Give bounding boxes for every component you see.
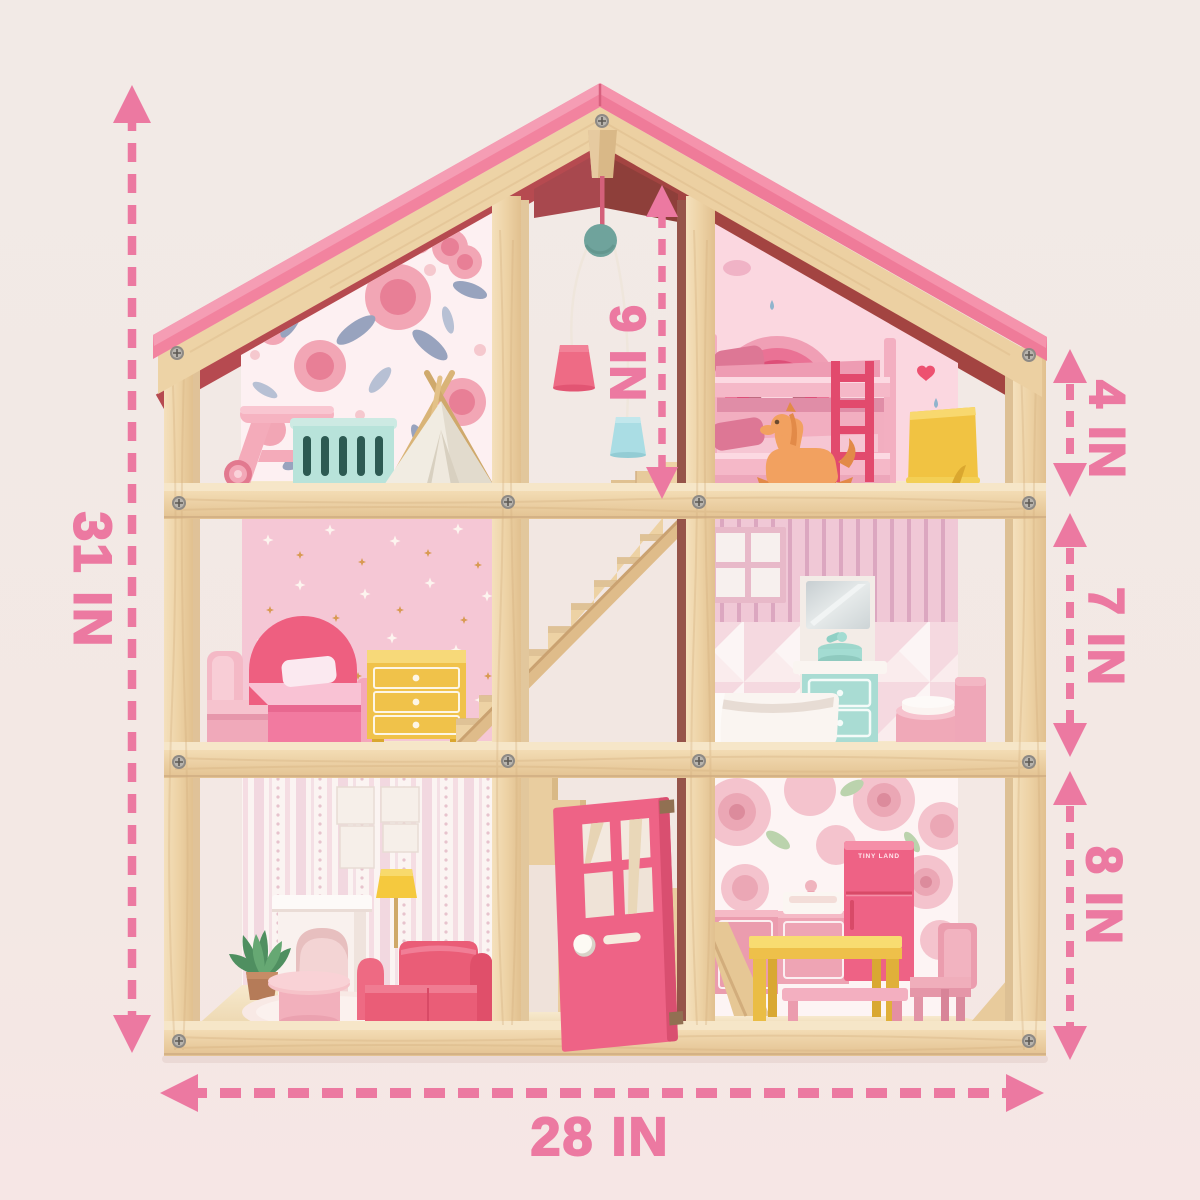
svg-text:28 IN: 28 IN [530, 1107, 669, 1167]
svg-text:4 IN: 4 IN [1079, 380, 1135, 480]
svg-text:9 IN: 9 IN [600, 305, 654, 403]
svg-text:TINY LAND: TINY LAND [858, 853, 900, 860]
svg-text:31 IN: 31 IN [63, 512, 122, 649]
svg-text:7 IN: 7 IN [1078, 587, 1134, 687]
svg-text:8 IN: 8 IN [1076, 846, 1132, 946]
